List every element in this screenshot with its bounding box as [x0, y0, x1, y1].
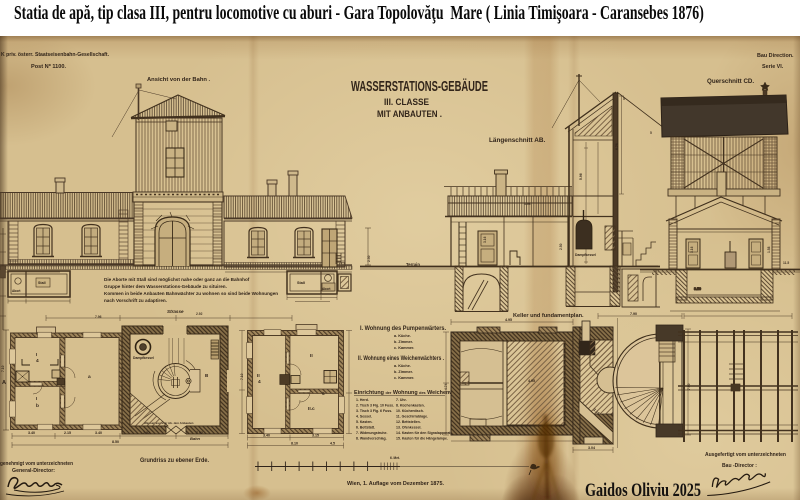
- svg-text:B: B: [205, 373, 209, 378]
- svg-text:3.16: 3.16: [483, 236, 487, 243]
- svg-text:Strasse: Strasse: [167, 309, 184, 314]
- svg-text:II. Wohnung eines Weichenwächt: II. Wohnung eines Weichenwächters .: [358, 355, 444, 362]
- svg-text:I. Wohnung des Pumpenwärters.: I. Wohnung des Pumpenwärters.: [360, 325, 446, 332]
- svg-text:13. Ofenkessel.: 13. Ofenkessel.: [396, 426, 422, 430]
- svg-text:2.92: 2.92: [196, 312, 203, 316]
- svg-text:2.50: 2.50: [559, 243, 563, 250]
- svg-text:5: 5: [650, 131, 652, 135]
- svg-text:4.5: 4.5: [330, 442, 335, 446]
- svg-text:12. Bettstellen.: 12. Bettstellen.: [396, 420, 421, 424]
- svg-text:8.10: 8.10: [291, 442, 298, 446]
- svg-text:6.76: 6.76: [615, 143, 619, 150]
- svg-text:7.92: 7.92: [196, 431, 203, 435]
- svg-text:4.95: 4.95: [505, 318, 512, 322]
- svg-text:4.95: 4.95: [528, 379, 535, 383]
- svg-text:4: 4: [36, 358, 39, 364]
- svg-text:2. Tisch 3 Flg. 10 Fuss.: 2. Tisch 3 Flg. 10 Fuss.: [356, 404, 394, 408]
- svg-text:5: 5: [623, 97, 625, 101]
- svg-text:a. Küche.: a. Küche.: [394, 364, 411, 368]
- svg-text:5.96: 5.96: [579, 173, 583, 180]
- svg-text:Die Aborte mit Stall sind mögl: Die Aborte mit Stall sind möglichst nahe…: [104, 277, 250, 282]
- svg-text:II: II: [257, 373, 260, 379]
- svg-text:genehmigt vom unterzeichneten: genehmigt vom unterzeichneten: [0, 461, 73, 467]
- svg-text:5. Kasten.: 5. Kasten.: [356, 420, 373, 424]
- svg-text:6. Met.: 6. Met.: [390, 456, 400, 460]
- svg-text:I: I: [36, 352, 38, 358]
- svg-text:K priv. österr. Staatseisenbah: K priv. österr. Staatseisenbahn-Gesellsc…: [1, 52, 109, 58]
- svg-text:1.58: 1.58: [767, 246, 771, 253]
- svg-text:c. Kammer.: c. Kammer.: [394, 346, 414, 350]
- svg-text:7.10: 7.10: [240, 373, 244, 380]
- svg-text:b. Zimmer.: b. Zimmer.: [394, 340, 413, 344]
- svg-text:Abort: Abort: [12, 289, 21, 293]
- svg-text:8.50: 8.50: [112, 440, 119, 444]
- svg-text:3.40: 3.40: [263, 434, 270, 438]
- svg-text:3.16: 3.16: [690, 246, 694, 253]
- svg-text:4: 4: [258, 379, 261, 385]
- svg-text:II: II: [310, 353, 313, 359]
- svg-text:1. Herd.: 1. Herd.: [356, 398, 369, 402]
- svg-text:WASSERSTATIONS-GEBÄUDE: WASSERSTATIONS-GEBÄUDE: [351, 78, 488, 95]
- svg-text:I: I: [36, 396, 38, 402]
- svg-text:Gaidos Oliviu 2025: Gaidos Oliviu 2025: [585, 481, 701, 500]
- svg-text:Bau Direction.: Bau Direction.: [757, 53, 794, 59]
- svg-text:b: b: [36, 403, 39, 409]
- svg-text:3.40: 3.40: [95, 431, 102, 435]
- svg-text:Längenschnitt AB.: Längenschnitt AB.: [489, 137, 545, 144]
- svg-text:Dampfkessel: Dampfkessel: [133, 356, 154, 360]
- svg-text:4. Sessel.: 4. Sessel.: [356, 415, 372, 419]
- svg-text:7. Widmungstruhe.: 7. Widmungstruhe.: [356, 431, 387, 435]
- svg-text:8. Wandverschlag.: 8. Wandverschlag.: [356, 437, 387, 441]
- svg-text:7.90: 7.90: [630, 312, 637, 316]
- svg-text:6. Bettstatt.: 6. Bettstatt.: [356, 426, 375, 430]
- svg-text:3.15: 3.15: [312, 434, 319, 438]
- svg-text:General-Director:: General-Director:: [12, 468, 55, 474]
- svg-text:4.98: 4.98: [524, 202, 531, 206]
- svg-text:3.04: 3.04: [588, 446, 595, 450]
- svg-text:a: a: [88, 375, 91, 380]
- svg-text:10. Küchentisch.: 10. Küchentisch.: [396, 409, 424, 413]
- svg-text:14. Kasten für den Signalappar: 14. Kasten für den Signalapparat.: [396, 431, 451, 435]
- svg-text:Bahn: Bahn: [190, 436, 201, 441]
- svg-text:a. Küche.: a. Küche.: [394, 334, 411, 338]
- svg-text:Kommen in beide Anbauten Bahnw: Kommen in beide Anbauten Bahnwächter zu …: [104, 291, 278, 296]
- svg-text:Stall: Stall: [38, 281, 46, 285]
- svg-text:3. Tisch 3 Flg. 6 Fuss.: 3. Tisch 3 Flg. 6 Fuss.: [356, 409, 392, 413]
- svg-text:Querschnitt CD.: Querschnitt CD.: [707, 78, 754, 85]
- svg-text:Abort: Abort: [322, 287, 331, 291]
- svg-text:Keller und fundamentplan.: Keller und fundamentplan.: [513, 313, 584, 319]
- svg-text:6: 6: [322, 391, 325, 397]
- svg-text:7.96: 7.96: [95, 315, 102, 319]
- svg-text:2.15: 2.15: [64, 431, 71, 435]
- svg-text:II.c: II.c: [308, 406, 315, 412]
- svg-text:2.92: 2.92: [143, 431, 150, 435]
- svg-text:A: A: [2, 380, 6, 386]
- svg-text:nach Vorschrift zu adaptiren.: nach Vorschrift zu adaptiren.: [104, 298, 167, 303]
- svg-text:III. CLASSE: III. CLASSE: [384, 97, 429, 108]
- svg-text:2.50: 2.50: [367, 255, 371, 262]
- svg-text:15. Kasten für die Hängelampe.: 15. Kasten für die Hängelampe.: [396, 437, 448, 441]
- svg-text:Ausgefertigt vom unterzeichnet: Ausgefertigt vom unterzeichneten: [705, 452, 786, 458]
- svg-text:Serie VI.: Serie VI.: [762, 64, 784, 70]
- svg-text:11.5: 11.5: [783, 261, 789, 265]
- svg-text:8. Küchenkasten.: 8. Küchenkasten.: [396, 404, 425, 408]
- svg-text:7. Uhr.: 7. Uhr.: [396, 398, 407, 402]
- svg-text:c. Kammer.: c. Kammer.: [394, 376, 414, 380]
- svg-text:b. Zimmer.: b. Zimmer.: [394, 370, 413, 374]
- svg-text:Ansicht von der Bahn .: Ansicht von der Bahn .: [147, 77, 211, 83]
- svg-text:Wien, 1. Auflage vom Dezember: Wien, 1. Auflage vom Dezember 1875.: [347, 481, 444, 487]
- svg-text:Stall: Stall: [297, 281, 305, 285]
- svg-text:Post Nº 1100.: Post Nº 1100.: [31, 64, 66, 70]
- svg-text:11. Geschirrablage.: 11. Geschirrablage.: [396, 415, 428, 419]
- svg-text:Grundriss zu ebener Erde.: Grundriss zu ebener Erde.: [140, 457, 209, 464]
- svg-text:7.10: 7.10: [1, 365, 5, 372]
- svg-text:3.40: 3.40: [28, 431, 35, 435]
- svg-text:Gruppe hinter dem Wasserstatio: Gruppe hinter dem Wasserstations-Gebäude…: [104, 284, 227, 289]
- svg-text:Dampfkessel: Dampfkessel: [575, 253, 596, 257]
- svg-text:4.74: 4.74: [444, 383, 448, 390]
- svg-text:Bau -Director :: Bau -Director :: [722, 463, 757, 469]
- svg-text:9.50: 9.50: [694, 287, 701, 291]
- svg-text:MIT ANBAUTEN .: MIT ANBAUTEN .: [377, 109, 442, 120]
- svg-text:7.90: 7.90: [687, 383, 691, 390]
